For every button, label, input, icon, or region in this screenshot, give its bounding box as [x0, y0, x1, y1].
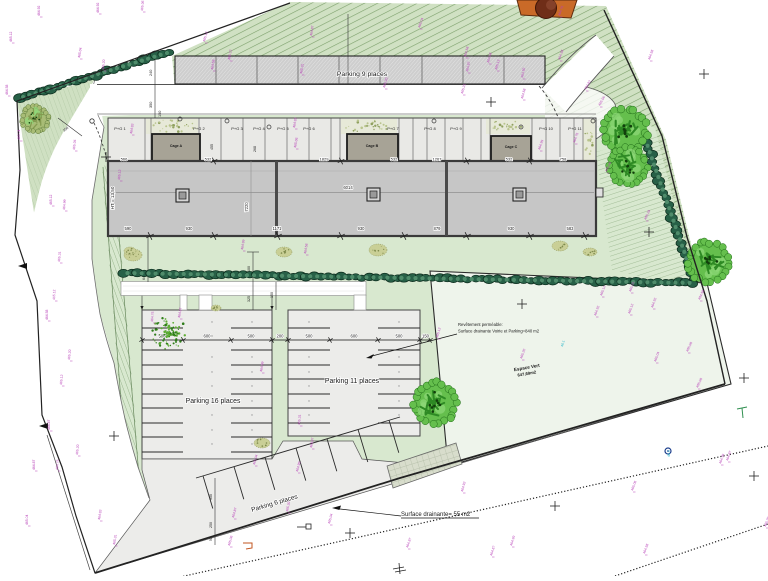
svg-text:250: 250	[209, 522, 213, 528]
svg-text:7220: 7220	[244, 202, 249, 212]
svg-text:Parking 11 places: Parking 11 places	[325, 378, 380, 385]
svg-text:464.87: 464.87	[47, 420, 51, 430]
svg-text:P+G 8: P+G 8	[424, 126, 436, 131]
svg-text:P+G 5: P+G 5	[277, 126, 289, 131]
svg-text:930: 930	[186, 226, 194, 231]
svg-text:500: 500	[396, 334, 404, 339]
svg-text:465.12: 465.12	[52, 289, 56, 300]
svg-text:465.04: 465.04	[17, 130, 21, 140]
svg-text:Parking 9 places: Parking 9 places	[337, 71, 388, 78]
svg-text:240: 240	[149, 70, 153, 76]
svg-text:HT = 13,50: HT = 13,50	[110, 186, 115, 209]
svg-text:P+G 4: P+G 4	[253, 126, 265, 131]
svg-text:500: 500	[306, 334, 314, 339]
svg-text:P+G 9: P+G 9	[450, 126, 462, 131]
svg-text:464.92: 464.92	[37, 6, 41, 16]
svg-text:532: 532	[205, 157, 212, 162]
svg-text:464.58: 464.58	[45, 310, 49, 320]
svg-text:930: 930	[508, 226, 516, 231]
svg-text:600: 600	[204, 334, 212, 339]
svg-text:532: 532	[506, 157, 513, 162]
svg-text:500: 500	[248, 334, 256, 339]
svg-text:464.92: 464.92	[96, 3, 100, 13]
svg-text:150: 150	[270, 292, 274, 298]
svg-text:Revêtement perméable:: Revêtement perméable:	[458, 322, 503, 327]
svg-text:350: 350	[149, 102, 153, 108]
svg-text:P+G 11: P+G 11	[568, 126, 582, 131]
svg-text:150: 150	[422, 334, 430, 339]
svg-text:465.04: 465.04	[25, 515, 29, 525]
svg-text:879: 879	[434, 226, 442, 231]
svg-text:590: 590	[125, 226, 133, 231]
svg-text:P+G 7: P+G 7	[387, 126, 399, 131]
svg-text:Surface drainante= 55 m2: Surface drainante= 55 m2	[401, 512, 471, 518]
svg-text:Cage C: Cage C	[505, 145, 518, 149]
svg-text:6014: 6014	[343, 185, 353, 190]
svg-text:583: 583	[567, 226, 575, 231]
svg-text:1171: 1171	[272, 226, 282, 231]
svg-text:268: 268	[253, 146, 257, 152]
svg-text:P+G 3: P+G 3	[231, 126, 243, 131]
svg-text:P+G 6: P+G 6	[303, 126, 315, 131]
svg-text:532: 532	[391, 157, 398, 162]
svg-text:P+G 1: P+G 1	[114, 126, 126, 131]
svg-text:758: 758	[560, 157, 567, 162]
svg-text:930: 930	[358, 226, 366, 231]
svg-text:464.58: 464.58	[5, 85, 9, 95]
svg-text:1267: 1267	[433, 157, 443, 162]
svg-text:P+G 2: P+G 2	[193, 126, 205, 131]
svg-text:46.3: 46.3	[667, 450, 671, 457]
svg-text:Parking 16 places: Parking 16 places	[186, 398, 241, 405]
svg-text:150: 150	[158, 111, 162, 117]
svg-text:950: 950	[209, 494, 213, 500]
svg-text:P+G 10: P+G 10	[539, 126, 553, 131]
svg-text:Surface drainante Voirie et Pa: Surface drainante Voirie et Parking=840 …	[458, 329, 540, 334]
svg-text:600: 600	[351, 334, 359, 339]
svg-text:100: 100	[247, 266, 251, 272]
svg-text:200: 200	[277, 334, 285, 339]
svg-text:500: 500	[159, 334, 167, 339]
svg-text:465.12: 465.12	[9, 32, 13, 42]
svg-text:464.87: 464.87	[32, 460, 36, 470]
svg-text:1829: 1829	[320, 157, 330, 162]
svg-text:455: 455	[210, 144, 214, 150]
svg-text:Cage B: Cage B	[366, 144, 379, 148]
svg-text:566: 566	[121, 157, 128, 162]
svg-text:Cage A: Cage A	[170, 144, 183, 148]
svg-text:325: 325	[247, 296, 251, 302]
svg-text:465.12: 465.12	[49, 195, 53, 205]
